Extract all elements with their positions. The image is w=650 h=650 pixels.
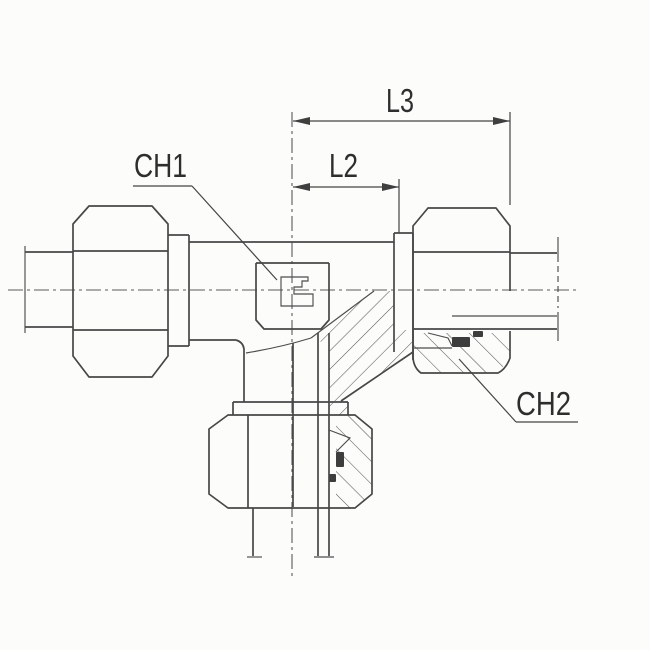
seal-section	[473, 331, 483, 337]
tee-fitting-drawing: L3 L2	[0, 0, 650, 650]
left-nut	[73, 206, 168, 377]
section-hatch-web	[311, 291, 413, 415]
label-ch1: CH1	[134, 147, 187, 184]
cutting-ring-section-bottom	[336, 452, 344, 467]
seal-section-bottom	[329, 474, 336, 482]
dimension-l2: L2	[293, 147, 399, 233]
technical-drawing-canvas: L3 L2	[0, 0, 650, 650]
callout-ch1: CH1	[133, 147, 277, 280]
bottom-tube	[247, 333, 334, 557]
label-l2: L2	[329, 147, 358, 184]
label-l3: L3	[386, 82, 414, 119]
leader-ch1	[192, 186, 277, 280]
label-ch2: CH2	[516, 385, 571, 422]
thread-symbol	[281, 277, 313, 306]
right-collar	[394, 233, 413, 291]
cutting-ring-section	[452, 337, 470, 347]
